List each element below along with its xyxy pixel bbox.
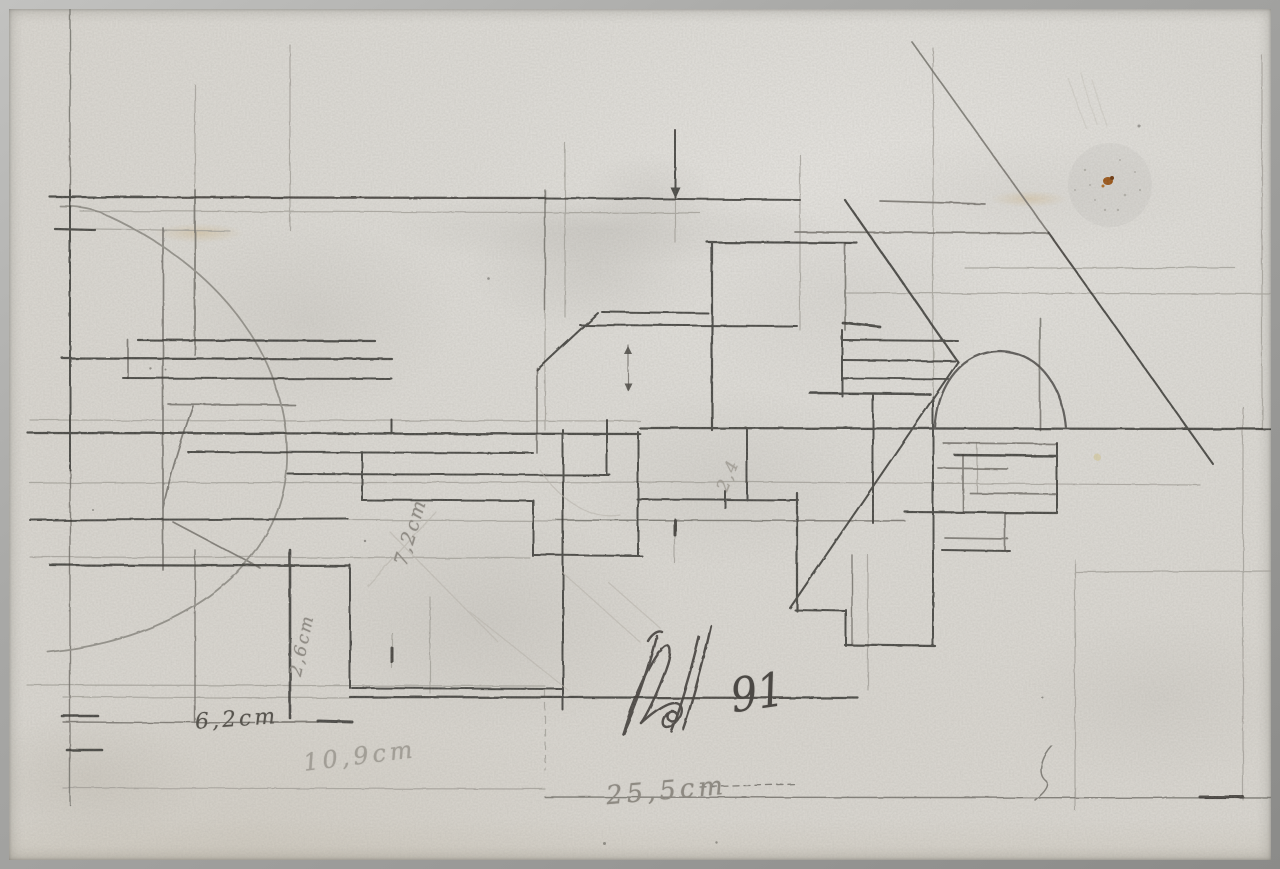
drawing-paper: 6,2cm 10,9cm 25,5cm 7,2cm 2,6cm 2,4 91 — [9, 9, 1271, 860]
photo-frame: 6,2cm 10,9cm 25,5cm 7,2cm 2,6cm 2,4 91 — [0, 0, 1280, 869]
pencil-sketch — [9, 9, 1271, 860]
grain-overlay — [9, 9, 1271, 860]
